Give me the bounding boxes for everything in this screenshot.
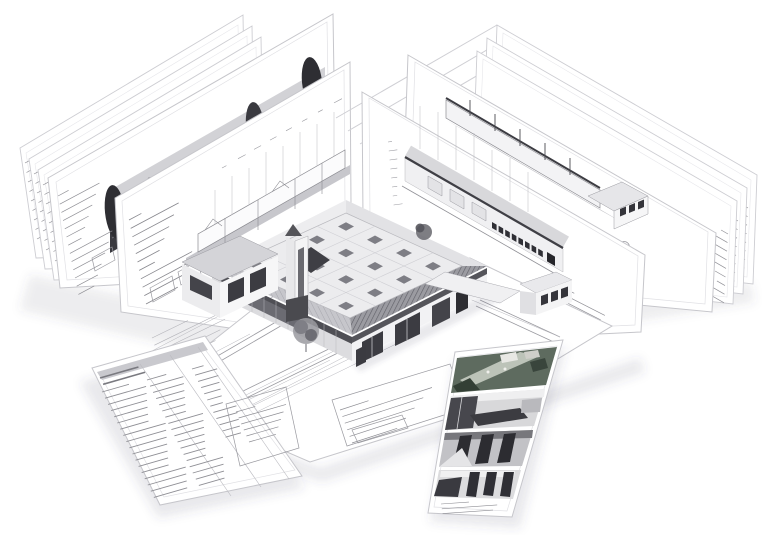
photo-interior-hall (434, 470, 521, 499)
bim-documentation-illustration (0, 0, 762, 535)
tower-window (298, 247, 304, 303)
pavilion-wall-side (520, 291, 536, 315)
photo-window-frames (439, 430, 533, 467)
